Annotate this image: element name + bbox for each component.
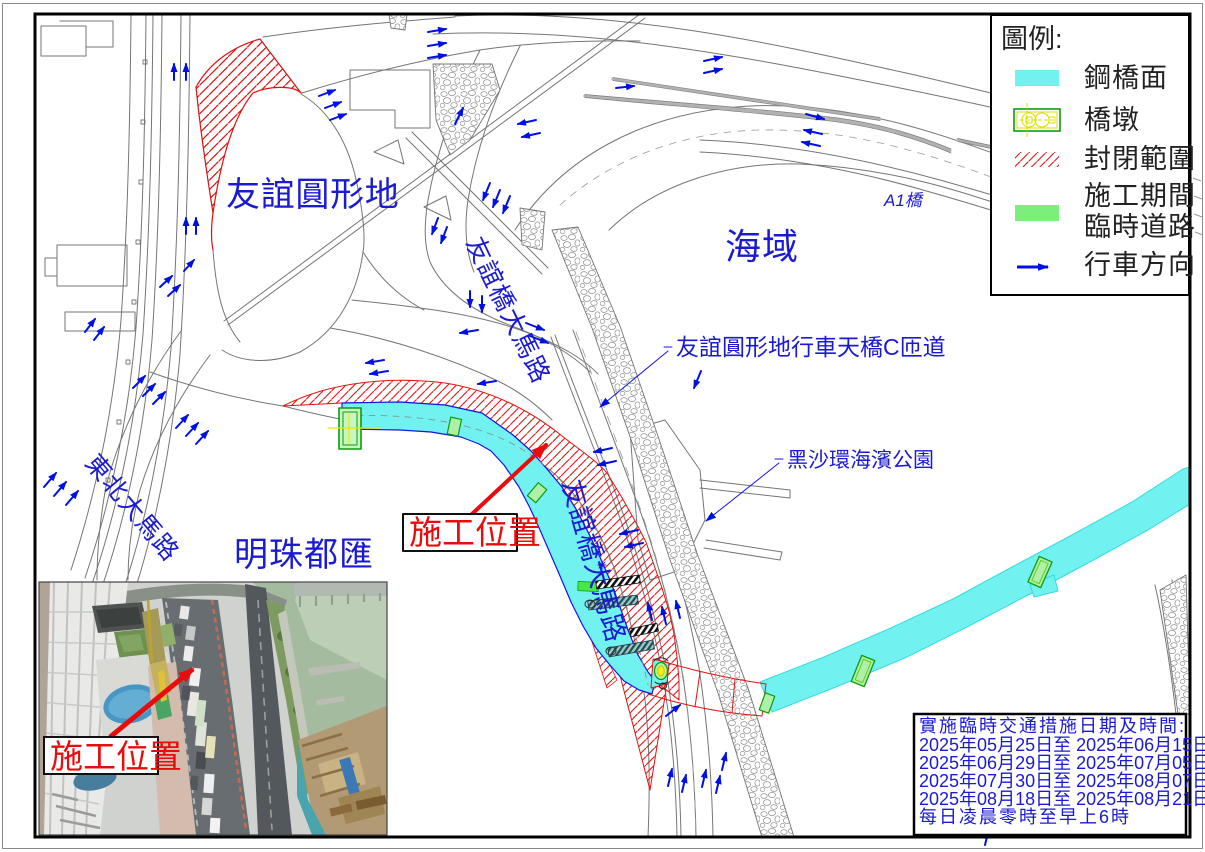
svg-text:2025年07月30日至 2025年08月07日: 2025年07月30日至 2025年08月07日	[919, 771, 1205, 791]
svg-text:鋼橋面: 鋼橋面	[1084, 63, 1168, 93]
svg-text:2025年06月29日至 2025年07月05日: 2025年06月29日至 2025年07月05日	[919, 753, 1205, 773]
svg-text:友誼圓形地: 友誼圓形地	[226, 176, 400, 214]
svg-text:封閉範圍: 封閉範圍	[1084, 144, 1196, 174]
svg-text:圖例:: 圖例:	[1001, 24, 1063, 54]
svg-text:橋墩: 橋墩	[1084, 105, 1140, 135]
svg-text:施工位置: 施工位置	[50, 738, 182, 775]
svg-text:A1橋: A1橋	[883, 191, 924, 210]
svg-text:海域: 海域	[725, 226, 799, 267]
svg-text:友誼圓形地行車天橋C匝道: 友誼圓形地行車天橋C匝道	[676, 334, 946, 360]
svg-text:明珠都匯: 明珠都匯	[234, 536, 374, 574]
svg-text:黑沙環海濱公園: 黑沙環海濱公園	[787, 449, 934, 472]
svg-text:施工位置: 施工位置	[409, 514, 541, 551]
svg-text:2025年08月18日至 2025年08月21日: 2025年08月18日至 2025年08月21日	[919, 789, 1205, 809]
svg-text:臨時道路: 臨時道路	[1084, 212, 1196, 242]
svg-text:2025年05月25日至 2025年06月15日: 2025年05月25日至 2025年06月15日	[919, 735, 1205, 755]
svg-text:行車方向: 行車方向	[1084, 250, 1196, 280]
svg-text:實施臨時交通措施日期及時間:: 實施臨時交通措施日期及時間:	[919, 716, 1186, 736]
svg-text:施工期間: 施工期間	[1084, 181, 1196, 211]
svg-text:每日凌晨零時至早上6時: 每日凌晨零時至早上6時	[919, 807, 1131, 827]
